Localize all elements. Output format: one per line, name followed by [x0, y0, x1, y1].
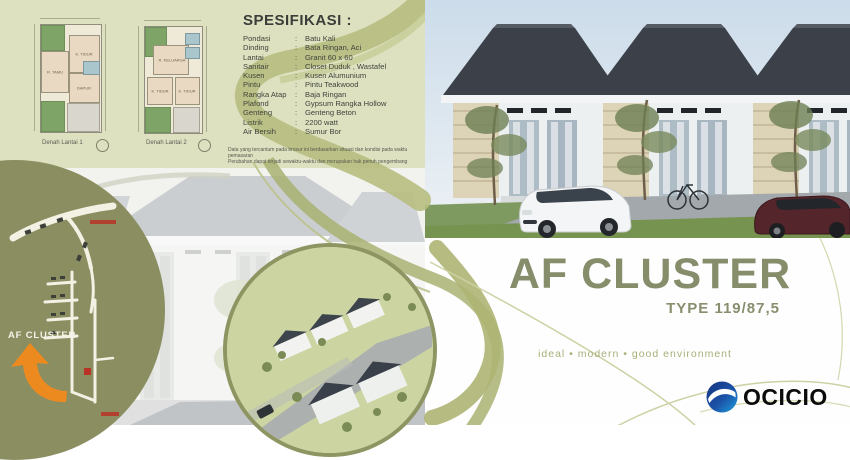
map-cluster-label: AF CLUSTER: [8, 330, 76, 341]
spec-label: Sanitair: [243, 62, 295, 71]
spec-value: Kusen Alumunium: [305, 71, 428, 80]
project-type: TYPE 119/87,5: [490, 300, 780, 317]
spec-value: Gypsum Rangka Hollow: [305, 99, 428, 108]
brochure-page: { "specs": { "title": "SPESIFIKASI :", "…: [0, 0, 850, 425]
room-label: R. TAMU: [47, 70, 63, 75]
spec-label: Lantai: [243, 53, 295, 62]
disclaimer-line1: Data yang tercantum pada brosur ini berd…: [228, 147, 428, 159]
dimension-line: [105, 24, 106, 131]
floorplan2-caption: Denah Lantai 2: [146, 140, 187, 147]
spec-colon: :: [295, 80, 305, 89]
balcony-area: [173, 107, 200, 133]
location-map: [0, 160, 165, 460]
spec-colon: :: [295, 127, 305, 136]
spec-value: Genteng Beton: [305, 108, 428, 117]
spec-row: Rangka Atap : Baja Ringan: [243, 90, 428, 99]
carport-area: [67, 103, 100, 132]
spec-colon: :: [295, 118, 305, 127]
spec-label: Genteng: [243, 108, 295, 117]
room-label: R. KELUARGA: [159, 58, 186, 63]
spec-row: Sanitair : Closet Duduk , Wastafel: [243, 62, 428, 71]
spec-row: Pondasi : Batu Kali: [243, 34, 428, 43]
spec-value: Pintu Teakwood: [305, 80, 428, 89]
spec-label: Pondasi: [243, 34, 295, 43]
white-car: [520, 186, 631, 238]
room-label: DAPUR: [77, 86, 91, 91]
spec-label: Listrik: [243, 118, 295, 127]
spec-label: Pintu: [243, 80, 295, 89]
spec-value: Sumur Bor: [305, 127, 428, 136]
north-compass-icon: [96, 139, 109, 152]
roof-garden: [145, 107, 171, 133]
room-label: K. TIDUR: [75, 52, 92, 57]
spec-row: Genteng : Genteng Beton: [243, 108, 428, 117]
project-tagline: ideal • modern • good environment: [490, 348, 780, 360]
garden-area: [41, 25, 65, 51]
spec-colon: :: [295, 43, 305, 52]
spec-row: Plafond : Gypsum Rangka Hollow: [243, 99, 428, 108]
dark-red-car: [755, 196, 850, 238]
spec-colon: :: [295, 99, 305, 108]
spec-value: 2200 watt: [305, 118, 428, 127]
spec-value: Granit 60 x 60: [305, 53, 428, 62]
spec-colon: :: [295, 53, 305, 62]
bathroom: [83, 61, 100, 75]
spec-label: Kusen: [243, 71, 295, 80]
brand-name: OCICIO: [743, 384, 828, 411]
specifications-block: SPESIFIKASI : Pondasi : Batu Kali Dindin…: [243, 12, 428, 136]
spec-label: Dinding: [243, 43, 295, 52]
room-label: K. TIDUR: [178, 89, 195, 94]
dimension-line: [206, 26, 207, 132]
dimension-line: [144, 20, 201, 21]
floorplan-level1: R. TAMU K. TIDUR DAPUR: [40, 24, 102, 133]
garden-area: [41, 101, 65, 132]
dimension-line: [40, 18, 100, 19]
spec-value: Closet Duduk , Wastafel: [305, 62, 428, 71]
dimension-line: [138, 26, 139, 132]
spec-row: Pintu : Pintu Teakwood: [243, 80, 428, 89]
bathroom: [185, 33, 200, 45]
spec-label: Air Bersih: [243, 127, 295, 136]
row-houses-photo: [425, 0, 850, 238]
project-title: AF CLUSTER: [490, 250, 810, 299]
room-label: K. TIDUR: [151, 89, 168, 94]
spec-colon: :: [295, 34, 305, 43]
spec-colon: :: [295, 108, 305, 117]
spec-colon: :: [295, 71, 305, 80]
bathroom: [185, 47, 200, 59]
spec-row: Listrik : 2200 watt: [243, 118, 428, 127]
spec-colon: :: [295, 62, 305, 71]
disclaimer-line2: Perubahan dapat terjadi sewaktu-waktu da…: [228, 159, 428, 165]
spec-label: Plafond: [243, 99, 295, 108]
spec-value: Batu Kali: [305, 34, 428, 43]
floorplan-level2: R. KELUARGA K. TIDUR K. TIDUR: [144, 26, 203, 134]
spec-value: Baja Ringan: [305, 90, 428, 99]
aerial-view-illustration: [227, 247, 433, 453]
spec-row: Lantai : Granit 60 x 60: [243, 53, 428, 62]
specifications-title: SPESIFIKASI :: [243, 12, 428, 29]
dimension-line: [34, 24, 35, 131]
spec-value: Bata Ringan, Aci: [305, 43, 428, 52]
spec-row: Kusen : Kusen Alumunium: [243, 71, 428, 80]
brand-circle-icon: [706, 381, 738, 413]
specifications-list: Pondasi : Batu Kali Dinding : Bata Ringa…: [243, 34, 428, 136]
spec-label: Rangka Atap: [243, 90, 295, 99]
north-compass-icon: [198, 139, 211, 152]
spec-colon: :: [295, 90, 305, 99]
disclaimer-text: Data yang tercantum pada brosur ini berd…: [228, 147, 428, 165]
spec-row: Dinding : Bata Ringan, Aci: [243, 43, 428, 52]
spec-row: Air Bersih : Sumur Bor: [243, 127, 428, 136]
brand-logo: OCICIO: [706, 381, 828, 413]
row-houses-illustration: [425, 0, 850, 238]
floorplan1-caption: Denah Lantai 1: [42, 140, 83, 147]
